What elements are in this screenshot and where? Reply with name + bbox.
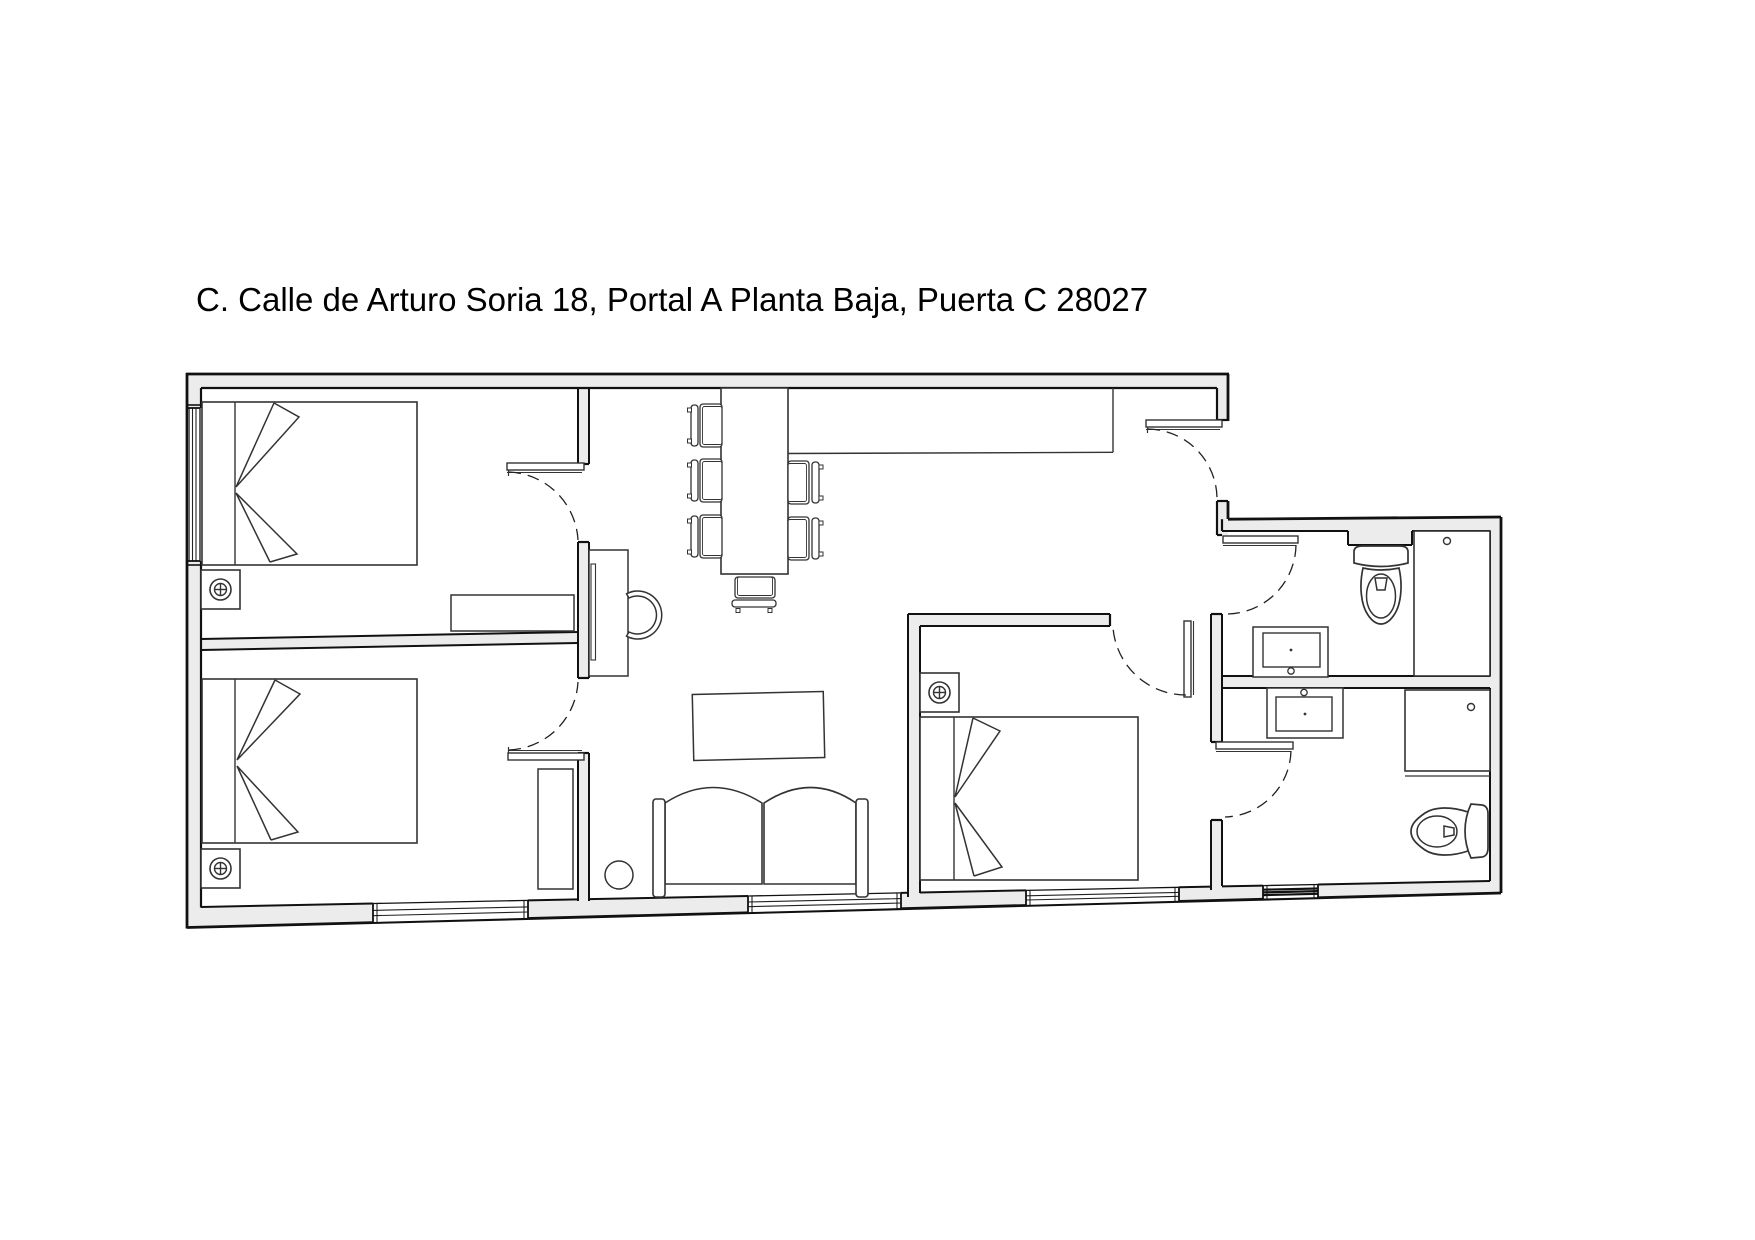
svg-text:C. Calle de Arturo Soria 18, P: C. Calle de Arturo Soria 18, Portal A Pl… [196,281,1148,318]
